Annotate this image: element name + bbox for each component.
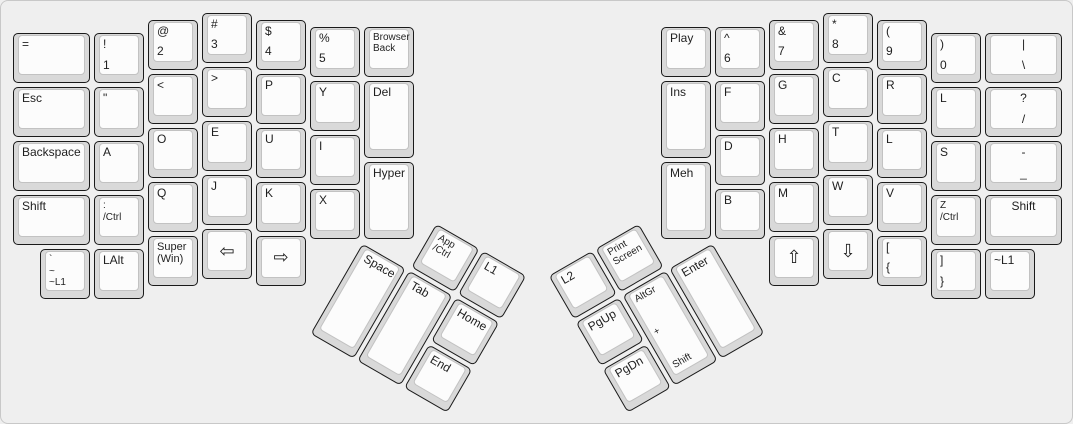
keyboard-layout-canvas: =EscBackspaceShift`~~L1!1"A:/CtrlLAlt@2<… [0,0,1073,424]
key-label: | [1022,38,1025,52]
key-label: PgUp [586,307,619,334]
key-label: PgDn [613,354,646,381]
key-label: Enter [679,254,711,280]
key-label: + [652,325,663,338]
key-label: L2 [559,269,577,288]
